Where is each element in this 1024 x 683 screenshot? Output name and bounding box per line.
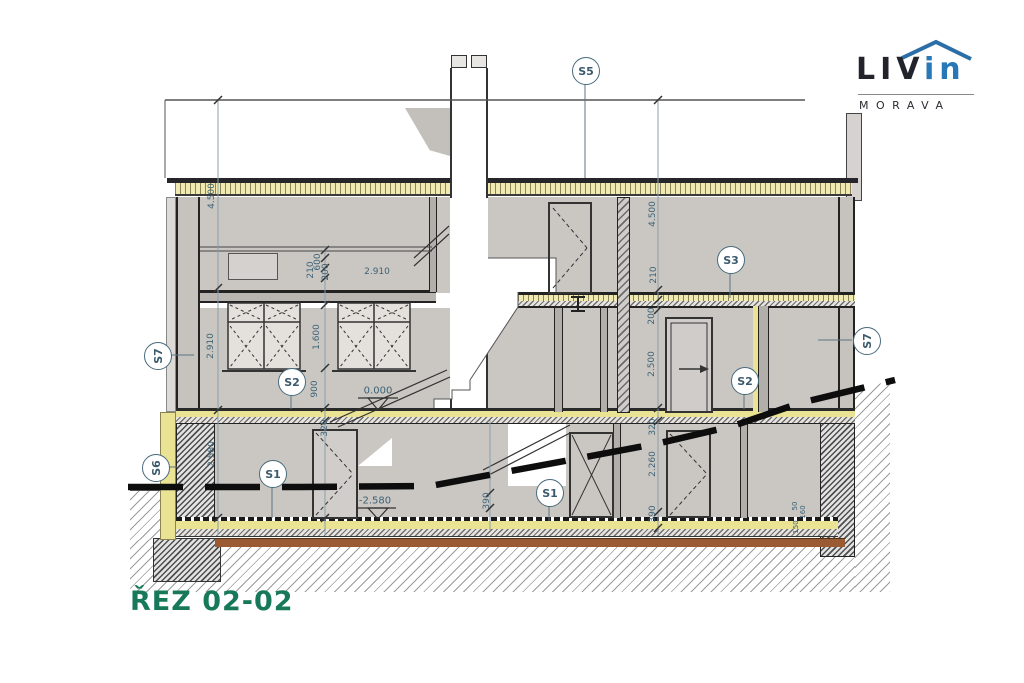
dim-label-detail: 160 bbox=[799, 505, 807, 518]
dim-label: 390 bbox=[482, 492, 492, 509]
steel-beam bbox=[571, 297, 585, 311]
door-ground-right bbox=[666, 318, 712, 412]
window-left-1 bbox=[222, 303, 306, 371]
architectural-section-drawing: 4.500 2.910 2.580 210 600 200 1.600 900 … bbox=[0, 0, 1024, 683]
logo-brand-blue: in bbox=[924, 52, 966, 87]
dim-label: 2.500 bbox=[647, 351, 657, 377]
dim-label: 4.500 bbox=[207, 183, 217, 209]
dim-label: 390 bbox=[648, 505, 658, 522]
company-logo: LIVin MORAVA bbox=[852, 36, 982, 116]
section-marker-s7-left: S7 bbox=[144, 342, 172, 370]
section-marker-s1-mid: S1 bbox=[536, 479, 564, 507]
logo-brand: LIVin bbox=[856, 52, 966, 87]
dim-label: 900 bbox=[310, 380, 320, 397]
dim-label-headroom: 2.910 bbox=[364, 267, 390, 277]
logo-subtitle: MORAVA bbox=[859, 99, 951, 112]
dim-label: 320 bbox=[320, 419, 330, 436]
dim-label: 4.500 bbox=[648, 201, 658, 227]
dim-label: 2.580 bbox=[207, 441, 217, 467]
stair-void bbox=[434, 198, 556, 408]
section-marker-s2-right: S2 bbox=[731, 367, 759, 395]
door-basement-1 bbox=[313, 430, 357, 518]
top-dimension-line bbox=[165, 100, 805, 178]
level-label-basement: -2.580 bbox=[359, 496, 391, 507]
upper-ceiling-lines bbox=[200, 247, 432, 251]
dim-label-detail: 150 bbox=[792, 520, 800, 533]
dim-label: 320 bbox=[648, 418, 658, 435]
section-marker-s7-right: S7 bbox=[853, 327, 881, 355]
door-basement-3 bbox=[667, 431, 710, 517]
section-marker-s3: S3 bbox=[717, 246, 745, 274]
dim-label: 210 bbox=[649, 266, 659, 283]
dim-label: 200 bbox=[321, 263, 331, 280]
level-label-ground: 0.000 bbox=[364, 386, 393, 397]
dim-label: 1.600 bbox=[312, 324, 322, 350]
logo-brand-black: LIV bbox=[856, 52, 924, 87]
section-marker-s2-left: S2 bbox=[278, 368, 306, 396]
window-left-2 bbox=[332, 303, 416, 371]
section-marker-s1-left: S1 bbox=[259, 460, 287, 488]
logo-divider bbox=[858, 94, 974, 95]
dim-label-detail: 50 bbox=[791, 502, 799, 511]
section-marker-s6: S6 bbox=[142, 454, 170, 482]
drawing-title: ŘEZ 02-02 bbox=[130, 586, 294, 617]
terrain-line bbox=[128, 380, 895, 487]
dim-label: 200 bbox=[647, 307, 657, 324]
section-marker-s5: S5 bbox=[572, 57, 600, 85]
door-basement-2 bbox=[570, 433, 613, 517]
dim-label: 2.260 bbox=[648, 451, 658, 477]
dim-label: 2.910 bbox=[206, 333, 216, 359]
